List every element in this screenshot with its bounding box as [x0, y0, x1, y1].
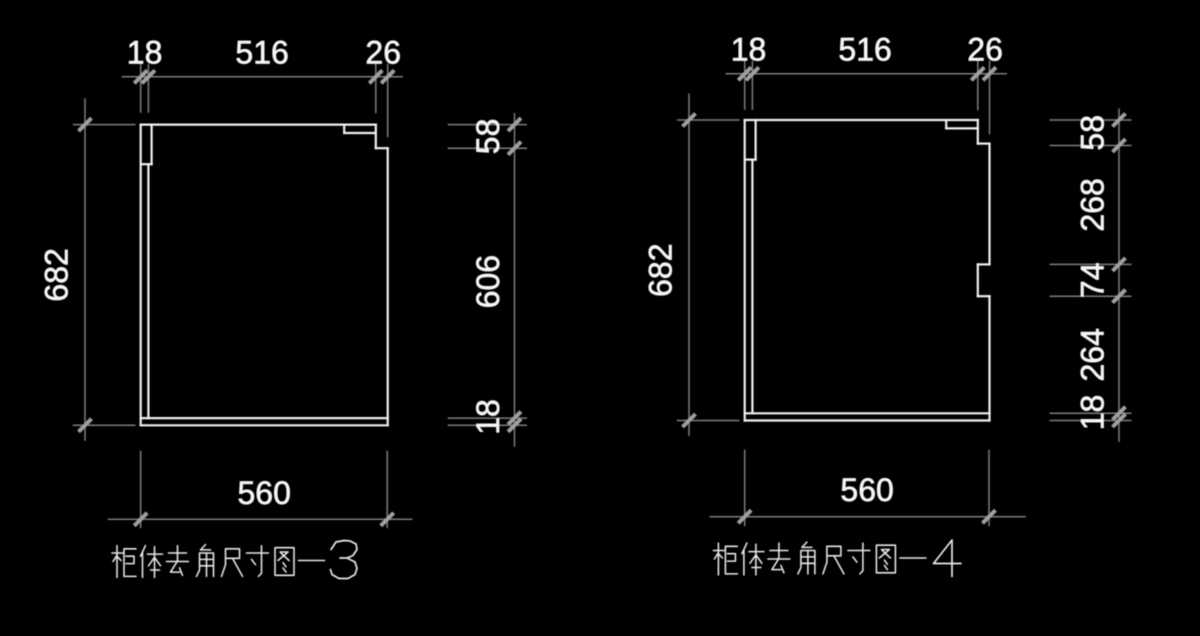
svg-text:58: 58 [470, 119, 506, 155]
svg-text:682: 682 [39, 248, 75, 301]
svg-text:606: 606 [470, 255, 506, 308]
svg-text:18: 18 [731, 31, 767, 67]
svg-text:18: 18 [127, 34, 163, 70]
svg-text:682: 682 [643, 244, 679, 297]
svg-text:58: 58 [1075, 115, 1111, 151]
svg-text:74: 74 [1075, 263, 1111, 299]
svg-text:516: 516 [838, 31, 891, 67]
svg-text:560: 560 [238, 475, 291, 511]
svg-text:26: 26 [967, 31, 1003, 67]
svg-text:18: 18 [470, 399, 506, 435]
svg-text:18: 18 [1075, 395, 1111, 431]
svg-text:26: 26 [365, 34, 401, 70]
svg-text:268: 268 [1075, 178, 1111, 231]
svg-text:264: 264 [1075, 328, 1111, 381]
svg-text:516: 516 [235, 34, 288, 70]
svg-text:560: 560 [840, 472, 893, 508]
